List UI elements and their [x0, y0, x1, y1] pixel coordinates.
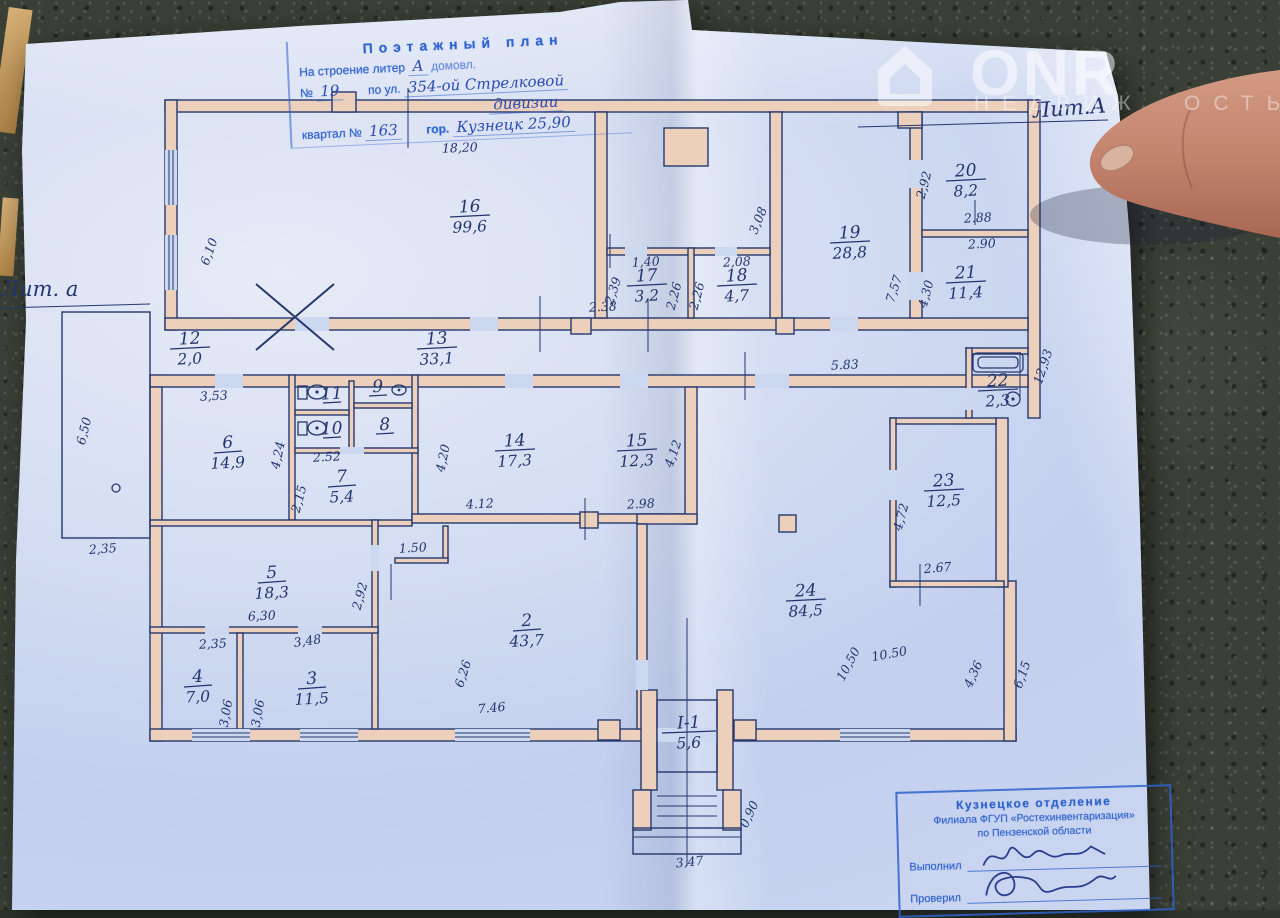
- room-number: 13: [425, 328, 448, 349]
- dimension-label: 4,20: [432, 443, 453, 474]
- room-number: 22: [985, 370, 1009, 391]
- dimension-label: 2,08: [721, 253, 751, 269]
- number-hand: 19: [316, 81, 344, 101]
- dimension-label: 6,50: [73, 416, 94, 447]
- room-area: 28,8: [831, 243, 868, 263]
- room-number: 21: [953, 262, 977, 283]
- room-area: 2,0: [176, 349, 203, 368]
- street-label: по ул.: [368, 82, 401, 97]
- dimension-label: 3,06: [248, 698, 268, 728]
- dimension-label: 4.12: [464, 495, 494, 511]
- room-area: 7,0: [185, 687, 211, 706]
- dimension-label: 2,92: [349, 580, 371, 612]
- dimension-label: 7.46: [477, 699, 506, 716]
- annex-outline: [0, 304, 150, 538]
- svg-text:Лит.А: Лит.А: [1031, 93, 1107, 122]
- room-number: 2: [520, 611, 533, 632]
- dimension-labels: 18,206,102,356,502.383,531,402,082,392,2…: [73, 139, 1055, 870]
- photo-of-floor-plan: { "header_stamp": { "title": "Поэтажный …: [0, 0, 1280, 910]
- checked-label: Проверил: [910, 892, 961, 905]
- room-area: 14,9: [210, 453, 246, 473]
- room-area: 4,7: [723, 286, 750, 305]
- city-label: гор.: [426, 121, 449, 136]
- room-area: 3,2: [634, 286, 660, 305]
- block-label: квартал №: [302, 125, 362, 142]
- room-number: 5: [266, 563, 278, 584]
- footer-stamp: Кузнецкое отделение Филиала ФГУП «Ростех…: [895, 784, 1174, 918]
- room-number: 3: [306, 669, 318, 690]
- dimension-label: 3,53: [199, 387, 228, 403]
- block-hand: 163: [365, 121, 402, 142]
- dimension-label: 6,10: [197, 236, 221, 267]
- dimension-label: 3,08: [746, 205, 770, 236]
- room-number: 19: [838, 222, 861, 243]
- dimension-label: 7,57: [882, 273, 905, 304]
- dimension-label: 10,50: [833, 645, 863, 684]
- room-number: 8: [379, 415, 391, 436]
- room-area: 11,5: [294, 689, 329, 709]
- dimension-label: 10.50: [870, 643, 908, 664]
- room-area: 5,4: [329, 487, 355, 506]
- dimension-label: 4,36: [960, 658, 986, 691]
- signature-checked: [979, 864, 1120, 906]
- dimension-label: 2,26: [663, 280, 685, 312]
- building-hand: А: [408, 56, 428, 76]
- room-number: 4: [191, 667, 204, 688]
- number-label: №: [300, 86, 313, 101]
- room-number: 15: [625, 430, 648, 451]
- dimension-label: 2.90: [966, 235, 996, 251]
- dimension-label: 1.50: [398, 539, 427, 555]
- dimension-label: 6,30: [247, 607, 276, 623]
- room-area: 8,2: [953, 181, 979, 200]
- room-number: 6: [222, 433, 234, 454]
- room-area: 33,1: [419, 349, 454, 369]
- dimension-label: 3,48: [293, 631, 323, 650]
- city-hand: Кузнецк 25,90: [452, 113, 575, 138]
- liter-left-label: Лит. а: [1, 277, 79, 301]
- dimension-label: 2,35: [197, 635, 227, 651]
- dimension-label: 3,47: [675, 853, 704, 871]
- room-number: 20: [953, 160, 977, 181]
- room-number: 9: [372, 377, 384, 398]
- room-number: I-1: [676, 712, 701, 733]
- room-number: 11: [320, 383, 343, 404]
- dimension-label: 4,24: [267, 440, 288, 471]
- room-area: 99,6: [452, 217, 488, 237]
- room-number: 10: [320, 418, 343, 439]
- dimension-label: 18,20: [442, 139, 478, 155]
- room-number: 24: [793, 580, 817, 601]
- room-number: 12: [178, 328, 201, 349]
- room-number: 16: [458, 196, 481, 217]
- room-area: 18,3: [254, 583, 290, 603]
- room-area: 43,7: [508, 631, 545, 651]
- building-tail: домовл.: [431, 57, 477, 73]
- dimension-label: 2.52: [311, 448, 341, 464]
- room-area: 17,3: [497, 451, 533, 471]
- room-area: 2,3: [984, 391, 1011, 410]
- dimension-label: 4,12: [661, 438, 685, 470]
- room-number: 14: [503, 430, 526, 451]
- dimension-label: 2.67: [922, 559, 952, 576]
- floor-plan-drawing: Лит. а Лит.А 1699,6173,2184,71928,8208,2…: [0, 0, 1280, 910]
- street-hand2: дивизии: [489, 92, 563, 114]
- header-stamp: Поэтажный план На строение литер А домов…: [286, 26, 633, 148]
- room-area: 5,6: [676, 733, 702, 752]
- building-label: На строение литер: [299, 60, 405, 79]
- dimension-label: 1,40: [631, 253, 660, 269]
- executed-label: Выполнил: [909, 860, 961, 873]
- room-number: 23: [931, 470, 955, 491]
- dimension-label: 2.98: [625, 495, 655, 511]
- room-area: 12,3: [619, 451, 655, 471]
- room-area: 84,5: [788, 601, 823, 621]
- dimension-label: 2,35: [87, 540, 117, 557]
- room-area: 12,5: [926, 491, 961, 511]
- dimension-label: 3,06: [216, 698, 236, 728]
- room-number: 7: [336, 467, 348, 488]
- dimension-label: 5.83: [830, 356, 859, 372]
- dimension-label: 2.88: [962, 209, 992, 225]
- room-area: 11,4: [948, 283, 983, 303]
- dimension-label: 6,26: [451, 658, 474, 689]
